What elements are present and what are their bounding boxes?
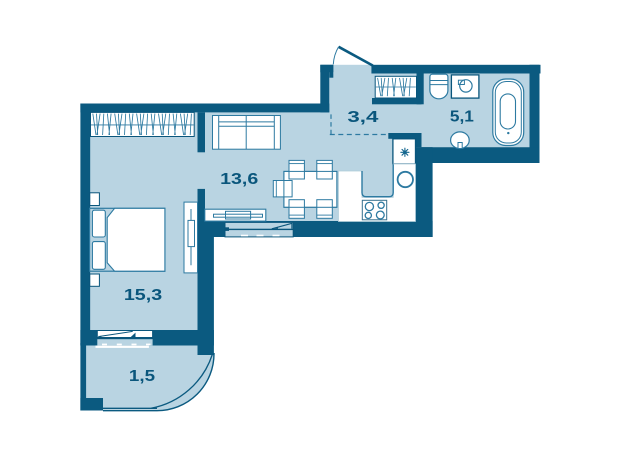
svg-text:5,1: 5,1 bbox=[450, 109, 474, 126]
svg-text:13,6: 13,6 bbox=[220, 171, 258, 188]
svg-text:15,3: 15,3 bbox=[124, 287, 162, 304]
svg-text:3,4: 3,4 bbox=[347, 109, 378, 126]
svg-text:1,5: 1,5 bbox=[129, 368, 155, 385]
